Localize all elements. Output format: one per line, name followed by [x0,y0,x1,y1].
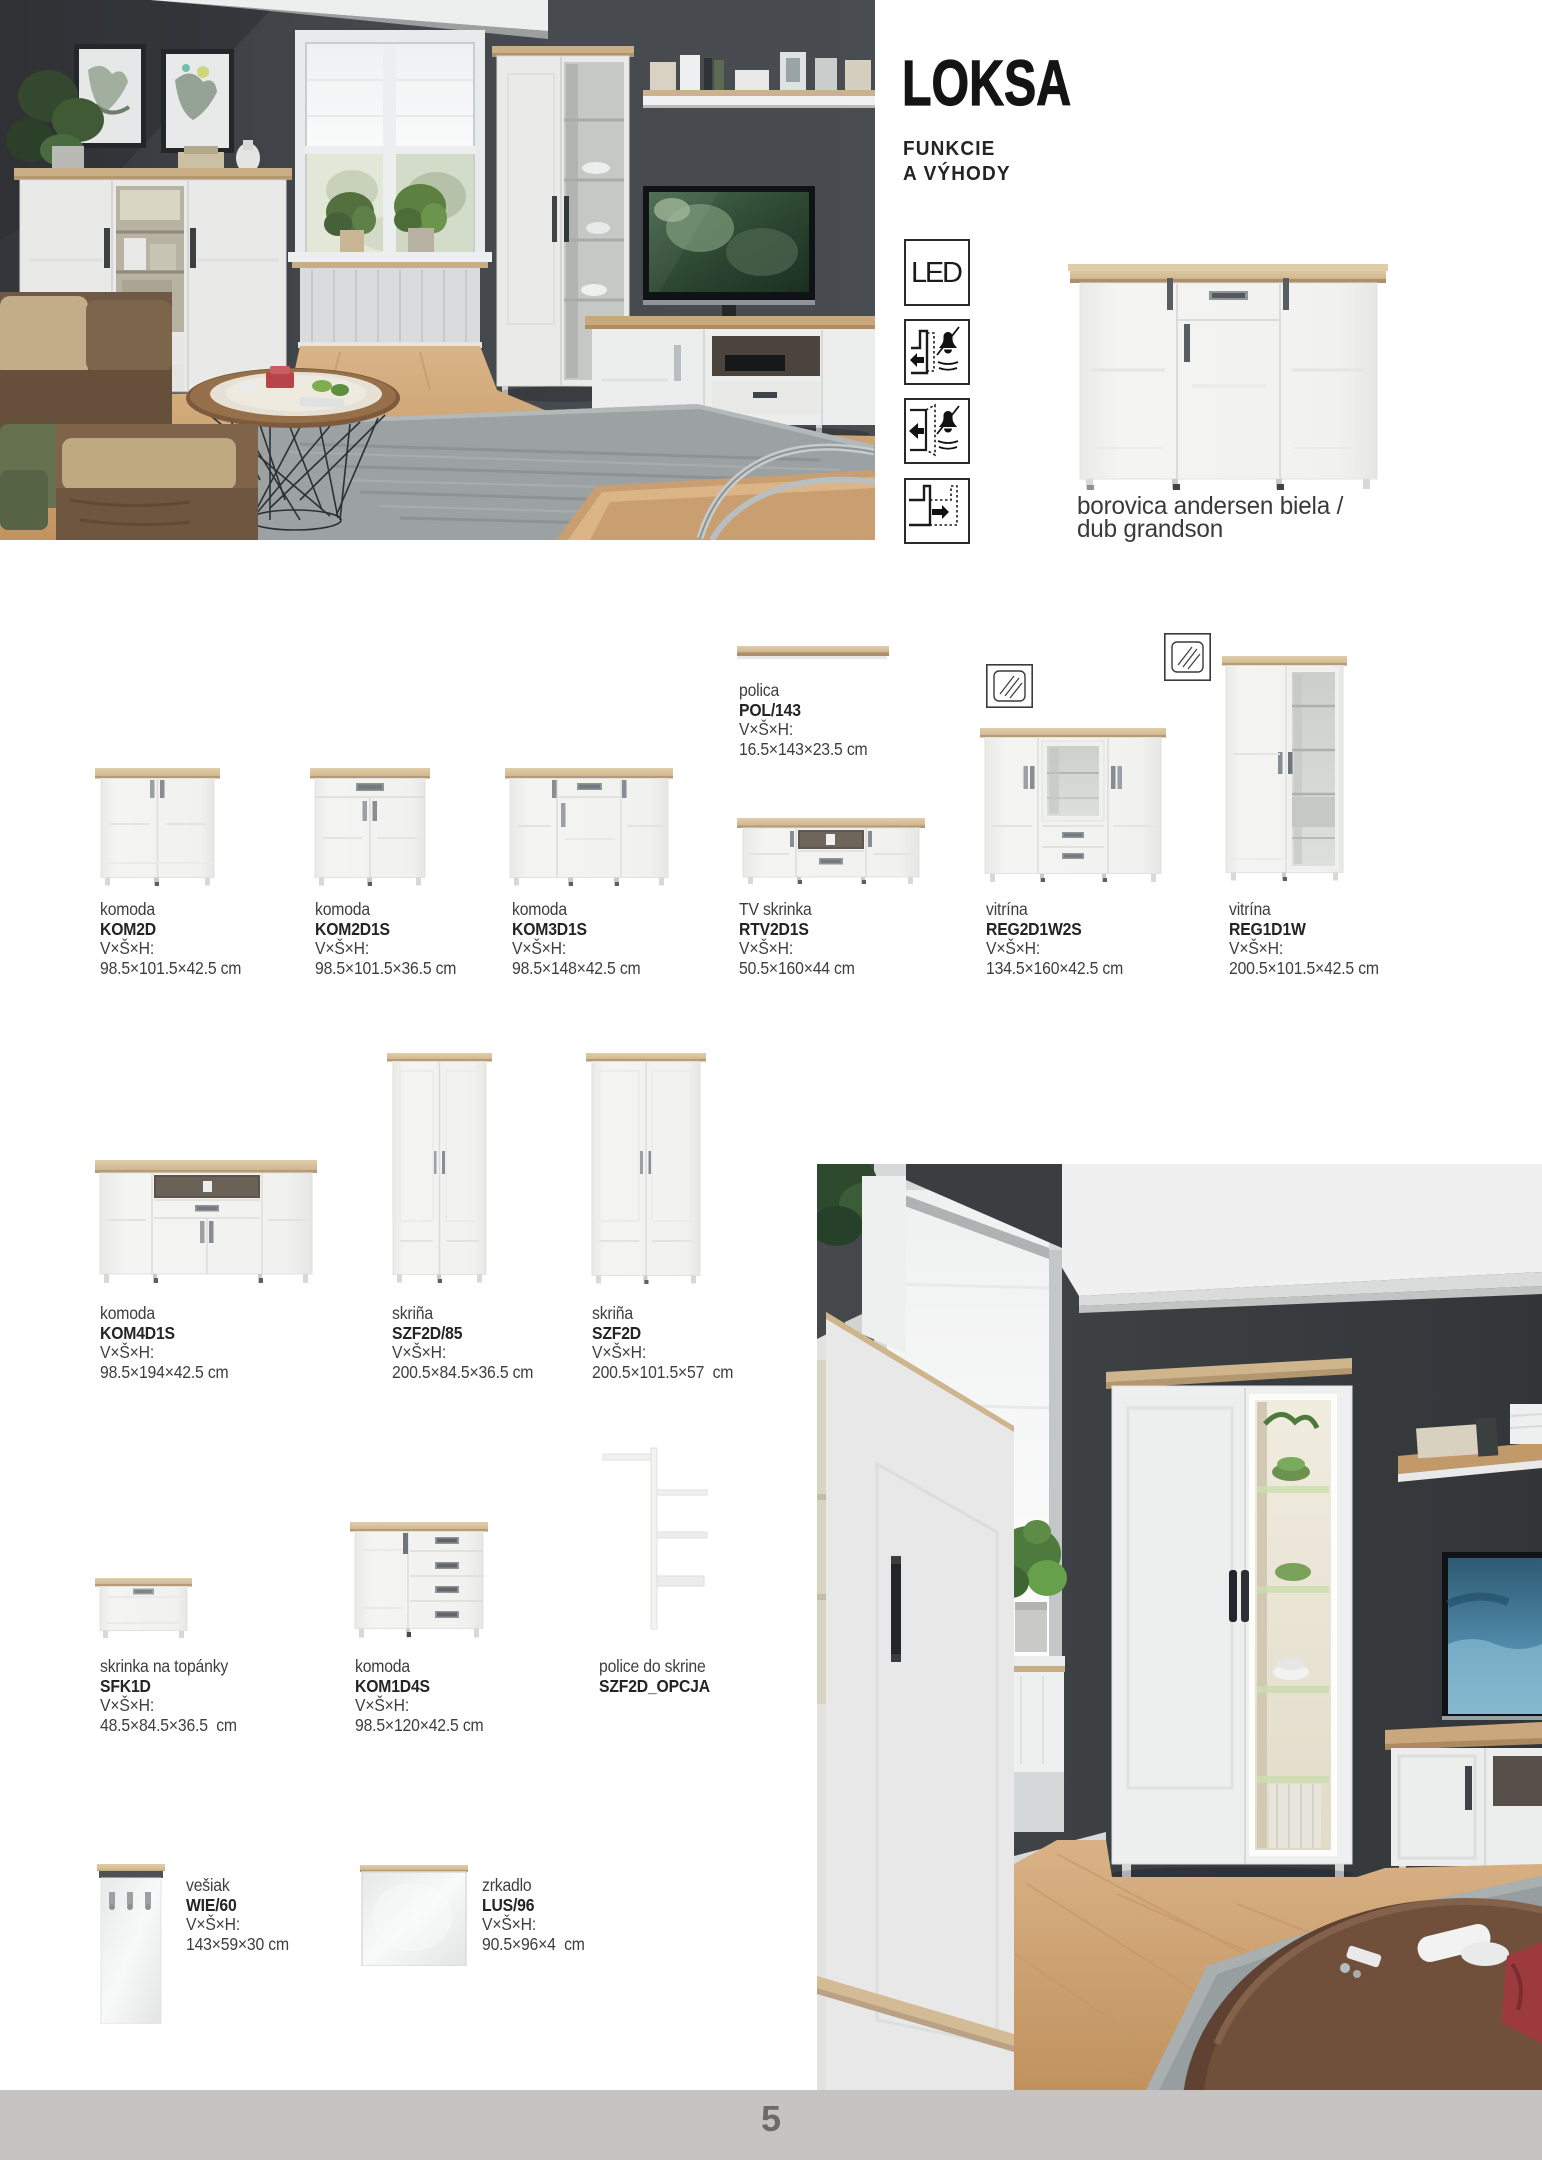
svg-text:LED: LED [911,257,963,289]
